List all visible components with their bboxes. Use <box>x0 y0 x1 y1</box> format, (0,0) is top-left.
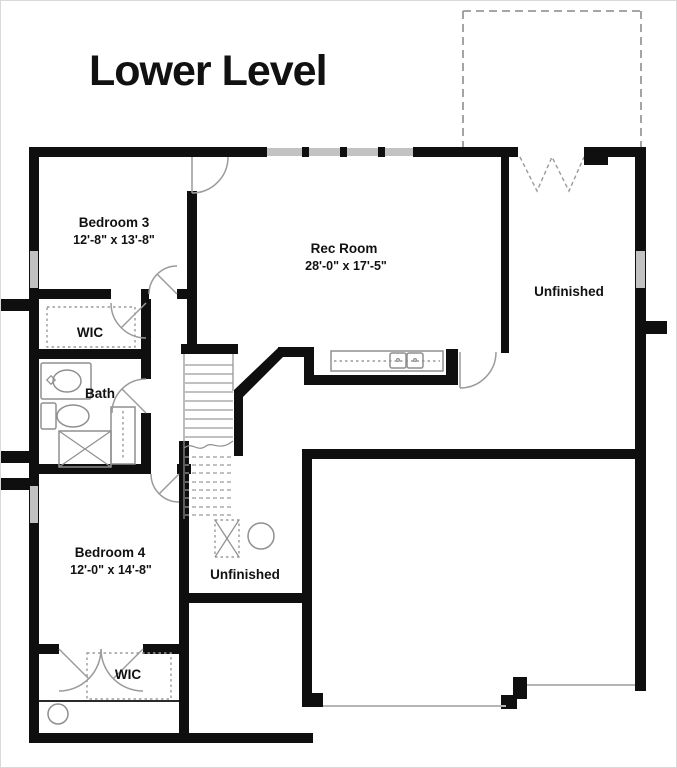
bar-counter <box>331 351 443 371</box>
staircase <box>184 354 233 519</box>
bath-door <box>112 379 146 413</box>
areaway-door-swing-dashed <box>520 157 584 191</box>
rec-unfinished-door <box>460 352 496 388</box>
toilet-icon <box>41 403 89 429</box>
sump-pit-icon <box>48 704 68 724</box>
deck-outline-dashed <box>463 11 641 191</box>
bedroom3-rec-door <box>192 157 228 193</box>
room-label-unfinished-right: Unfinished <box>534 284 604 299</box>
left-wall-stub <box>1 299 29 311</box>
bedroom4-window <box>30 486 38 523</box>
stair-treads-dashed <box>185 457 232 515</box>
room-dims-bedroom3: 12'-8" x 13'-8" <box>73 233 155 247</box>
room-label-wic-upper: WIC <box>77 325 103 340</box>
page-title: Lower Level <box>89 47 327 95</box>
bath-fixtures <box>41 363 135 467</box>
left-wall-stub <box>1 478 29 490</box>
water-heater-icon <box>248 523 274 549</box>
unfinished-window <box>636 251 645 288</box>
future-utility-icon <box>215 520 239 557</box>
fixtures <box>41 307 443 724</box>
room-label-bath: Bath <box>85 386 115 401</box>
stair-treads-solid <box>185 365 233 437</box>
room-label-bedroom4: Bedroom 4 <box>75 545 146 560</box>
floor-plan-page: Lower Level Bedroom 3 12'-8" x 13'-8" Re… <box>0 0 677 768</box>
room-dims-bedroom4: 12'-0" x 14'-8" <box>70 563 152 577</box>
room-label-bedroom3: Bedroom 3 <box>79 215 150 230</box>
left-wall-stub <box>1 451 29 463</box>
floor-plan-drawing: Lower Level Bedroom 3 12'-8" x 13'-8" Re… <box>1 1 677 768</box>
room-label-unfinished-center: Unfinished <box>210 567 280 582</box>
bar-sink-icon <box>407 353 423 368</box>
right-wall-stub <box>646 321 667 334</box>
room-label-wic-lower: WIC <box>115 667 141 682</box>
room-label-rec-room: Rec Room <box>311 241 378 256</box>
bar-sink-icon <box>390 353 406 368</box>
wic-upper-door <box>111 303 146 338</box>
bedroom3-window <box>30 251 38 288</box>
bedroom4-door <box>151 474 179 502</box>
linen-closet <box>111 407 135 464</box>
room-dims-rec-room: 28'-0" x 17'-5" <box>305 259 387 273</box>
shower-icon <box>59 431 111 467</box>
stair-break-line <box>184 441 233 448</box>
bedroom3-hall-door <box>149 266 177 294</box>
